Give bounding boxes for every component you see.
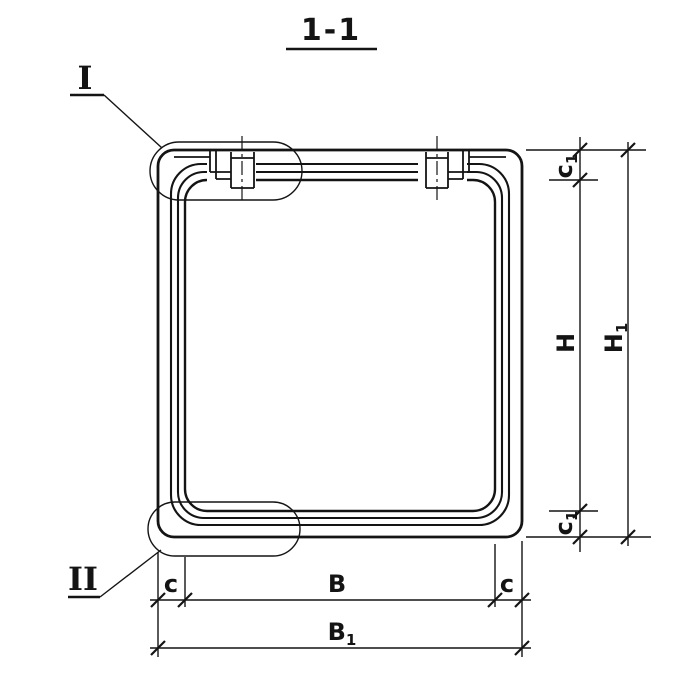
detail-I-label: I: [78, 59, 93, 97]
dim-label-H: H: [552, 333, 580, 353]
dim-label-c1-top-base: c: [550, 164, 578, 178]
section-drawing-1-1: 1-1 I II c1 H c1: [0, 0, 700, 700]
section-title-text: 1-1: [301, 13, 361, 48]
detail-II-label: II: [68, 560, 98, 598]
dim-label-c1-top-sub: 1: [563, 154, 581, 164]
dim-label-H1-base: H: [600, 333, 628, 353]
dim-label-c-left-base: c: [164, 570, 178, 598]
dim-label-H-base: H: [552, 333, 580, 353]
dim-label-c-right: c: [500, 570, 514, 598]
dim-label-B: B: [328, 570, 346, 598]
dim-label-c1-bottom-base: c: [550, 521, 578, 535]
drawing-sheet: 1-1 I II c1 H c1: [0, 0, 700, 700]
dim-label-c-right-base: c: [500, 570, 514, 598]
dim-label-c1-bottom-sub: 1: [563, 511, 581, 521]
dim-label-c-left: c: [164, 570, 178, 598]
dim-label-B1-sub: 1: [346, 631, 356, 649]
dim-label-B-base: B: [328, 570, 346, 598]
dim-label-H1-sub: 1: [613, 323, 631, 333]
paper-background: [0, 0, 700, 700]
dim-label-B1-base: B: [328, 618, 346, 646]
